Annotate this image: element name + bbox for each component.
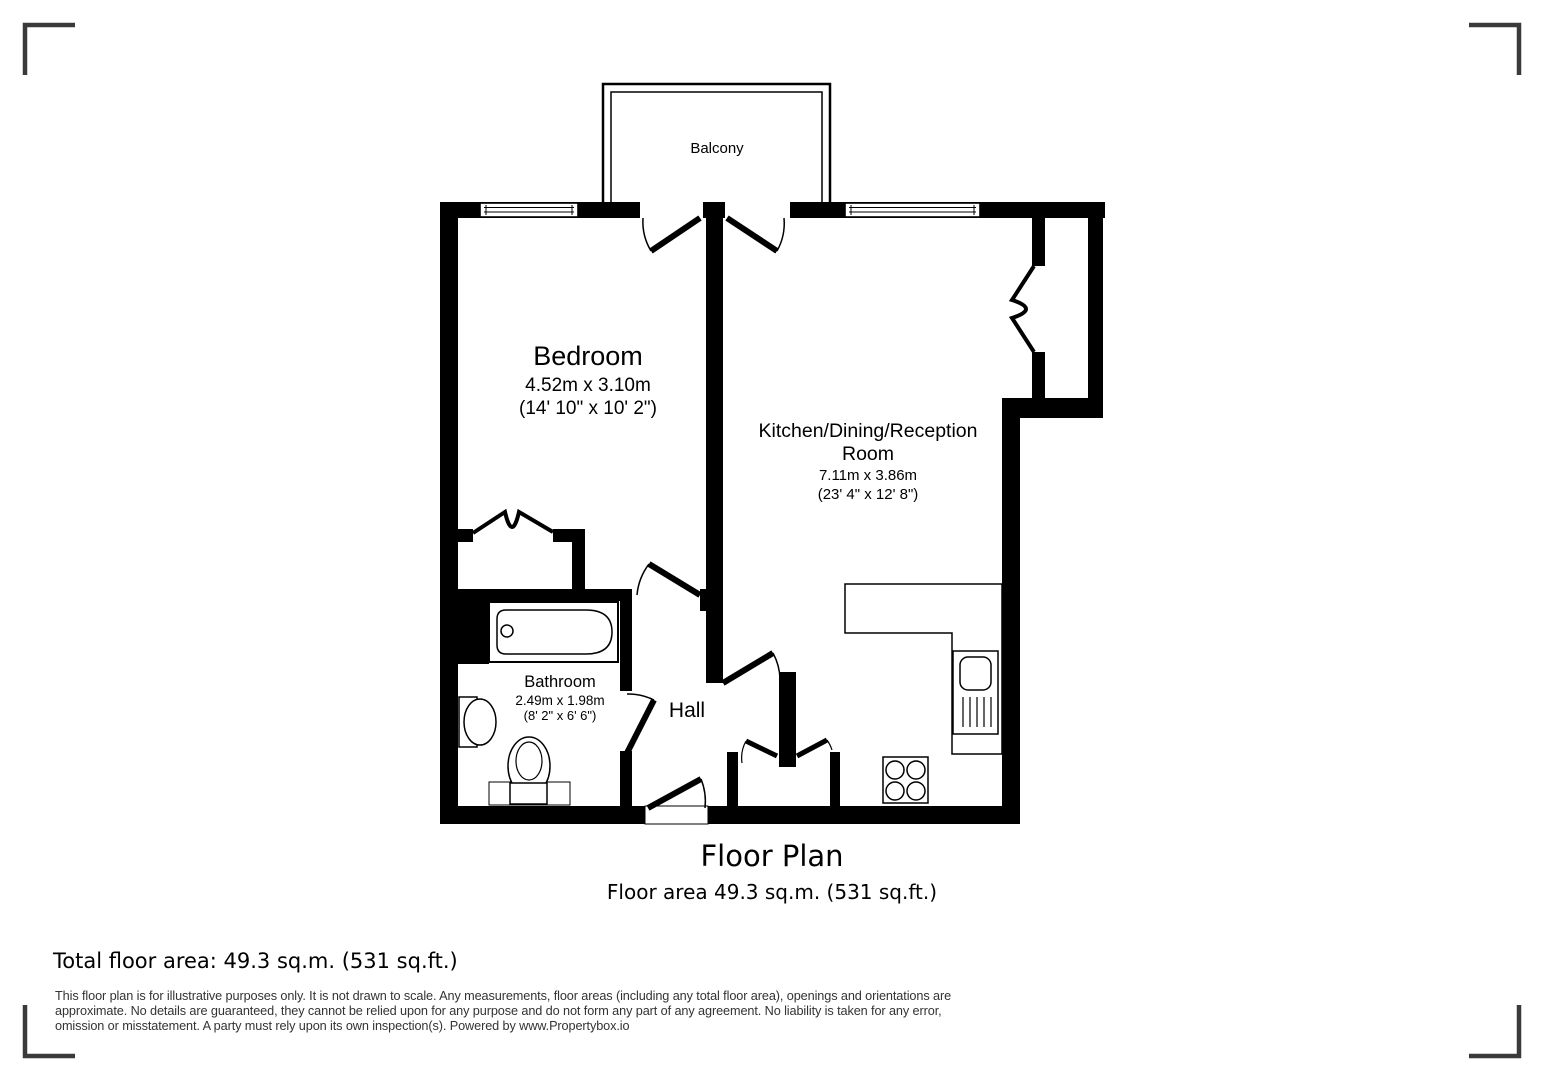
bathroom-label: Bathroom bbox=[524, 673, 596, 691]
balcony-door-right-icon bbox=[727, 218, 784, 251]
balcony-label: Balcony bbox=[690, 140, 744, 157]
cupboard-door-right-icon bbox=[797, 740, 832, 756]
disclaimer-text: This floor plan is for illustrative purp… bbox=[55, 989, 1115, 1034]
disclaimer-line-3: omission or misstatement. A party must r… bbox=[55, 1019, 1115, 1034]
bathtub-icon bbox=[489, 602, 618, 662]
front-door-recess bbox=[645, 806, 708, 824]
stove-icon bbox=[883, 757, 928, 803]
kitchen-label-line1: Kitchen/Dining/Reception bbox=[759, 420, 978, 442]
cupboard-door-left-icon bbox=[742, 741, 777, 763]
kitchen-dims-imperial: (23' 4" x 12' 8") bbox=[818, 486, 919, 503]
window-icon bbox=[480, 203, 578, 217]
floor-plan-title: Floor Plan bbox=[572, 839, 972, 873]
corner-mark-bottom-right bbox=[1469, 1005, 1519, 1056]
kitchen-label-line2: Room bbox=[842, 443, 894, 465]
front-door-icon bbox=[648, 779, 705, 808]
disclaimer-line-1: This floor plan is for illustrative purp… bbox=[55, 989, 1115, 1004]
floor-area-caption: Floor area 49.3 sq.m. (531 sq.ft.) bbox=[472, 880, 1072, 904]
hall-label: Hall bbox=[669, 699, 705, 722]
corner-mark-top-right bbox=[1469, 25, 1519, 75]
total-floor-area: Total floor area: 49.3 sq.m. (531 sq.ft.… bbox=[53, 949, 458, 973]
closet-bifold-door-icon bbox=[473, 512, 553, 533]
disclaimer-line-2: approximate. No details are guaranteed, … bbox=[55, 1004, 1115, 1019]
corner-mark-top-left bbox=[25, 25, 75, 75]
alcove-bifold-door-icon bbox=[1012, 266, 1034, 352]
floorplan-page: Balcony Bedroom 4.52m x 3.10m (14' 10" x… bbox=[0, 0, 1544, 1080]
bathroom-door-icon bbox=[627, 694, 654, 753]
floorplan-drawing: Balcony Bedroom 4.52m x 3.10m (14' 10" x… bbox=[0, 0, 1544, 1080]
window-icon bbox=[845, 203, 980, 217]
bedroom-label: Bedroom bbox=[533, 341, 643, 371]
bathroom-dims-metric: 2.49m x 1.98m bbox=[515, 693, 604, 708]
walls bbox=[440, 202, 1105, 824]
kitchen-door-icon bbox=[723, 653, 780, 683]
toilet-icon bbox=[489, 737, 570, 805]
bedroom-door-icon bbox=[637, 564, 700, 595]
balcony-door-left-icon bbox=[643, 218, 700, 251]
bedroom-dims-metric: 4.52m x 3.10m bbox=[525, 375, 651, 396]
kitchen-dims-metric: 7.11m x 3.86m bbox=[819, 467, 917, 484]
kitchen-sink-icon bbox=[953, 651, 998, 734]
sink-icon bbox=[459, 697, 496, 747]
bathroom-dims-imperial: (8' 2" x 6' 6") bbox=[524, 708, 597, 723]
door-swings bbox=[627, 218, 832, 808]
bedroom-dims-imperial: (14' 10" x 10' 2") bbox=[519, 398, 657, 419]
